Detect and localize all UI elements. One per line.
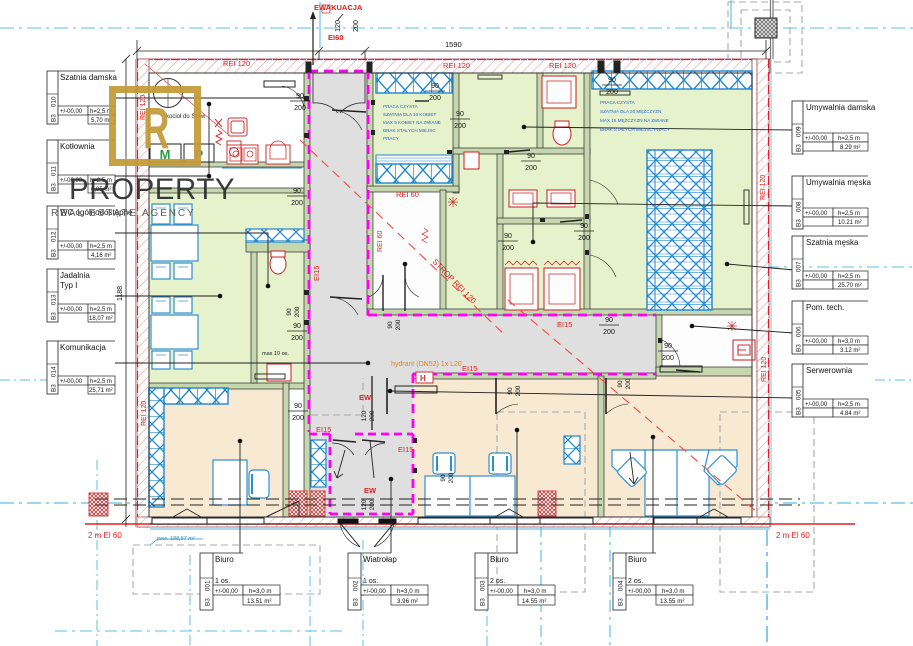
svg-text:REI 120: REI 120 bbox=[760, 175, 767, 200]
svg-text:B3 010: B3 010 bbox=[51, 96, 58, 122]
svg-text:PRACA CZYSTA: PRACA CZYSTA bbox=[383, 104, 419, 109]
svg-text:13.55 m²: 13.55 m² bbox=[660, 598, 684, 605]
svg-text:120: 120 bbox=[335, 20, 342, 32]
svg-text:h=3,0 m: h=3,0 m bbox=[838, 339, 860, 345]
svg-text:200: 200 bbox=[606, 89, 618, 96]
svg-text:h=2,5 m: h=2,5 m bbox=[90, 307, 112, 313]
svg-text:90: 90 bbox=[296, 93, 304, 100]
svg-text:EI15: EI15 bbox=[557, 320, 572, 329]
svg-text:R: R bbox=[143, 97, 169, 162]
svg-text:90: 90 bbox=[608, 77, 616, 84]
svg-text:EI15: EI15 bbox=[398, 445, 413, 454]
svg-text:h=2,5 m: h=2,5 m bbox=[90, 379, 112, 385]
svg-text:90: 90 bbox=[504, 233, 512, 240]
svg-text:B3 004: B3 004 bbox=[618, 580, 625, 606]
svg-text:PRACY: PRACY bbox=[383, 136, 399, 141]
svg-text:h=2,5 m: h=2,5 m bbox=[838, 211, 860, 217]
svg-text:hydrant (DN52) 1x L20: hydrant (DN52) 1x L20 bbox=[391, 361, 462, 368]
svg-text:5,70 m²: 5,70 m² bbox=[91, 118, 111, 124]
svg-text:B3 005: B3 005 bbox=[796, 389, 803, 415]
svg-text:+/-00,00: +/-00,00 bbox=[805, 136, 828, 142]
svg-text:BRAK STAŁYCH MIEJSC PRACY: BRAK STAŁYCH MIEJSC PRACY bbox=[600, 127, 670, 132]
svg-text:h=3,0 m: h=3,0 m bbox=[662, 588, 685, 595]
svg-text:18,07 m²: 18,07 m² bbox=[89, 316, 113, 322]
svg-text:+/-00,00: +/-00,00 bbox=[805, 211, 828, 217]
svg-text:B3 013: B3 013 bbox=[51, 294, 58, 320]
svg-text:200: 200 bbox=[292, 415, 304, 422]
svg-text:Biuro: Biuro bbox=[215, 555, 234, 564]
svg-text:+/-00,00: +/-00,00 bbox=[805, 402, 828, 408]
svg-text:120: 120 bbox=[361, 499, 368, 510]
svg-text:B3 009: B3 009 bbox=[796, 126, 803, 152]
svg-text:B3 003: B3 003 bbox=[480, 580, 487, 606]
svg-text:200: 200 bbox=[525, 165, 537, 172]
svg-text:200: 200 bbox=[291, 335, 303, 342]
svg-text:EW: EW bbox=[364, 486, 377, 495]
svg-text:EI15: EI15 bbox=[316, 425, 331, 434]
svg-text:BRAK STAŁYCH MIEJSC: BRAK STAŁYCH MIEJSC bbox=[383, 128, 436, 133]
svg-text:90: 90 bbox=[507, 387, 514, 395]
svg-text:+/-00,00: +/-00,00 bbox=[628, 588, 651, 595]
svg-text:2 m El 60: 2 m El 60 bbox=[88, 531, 122, 540]
svg-text:90: 90 bbox=[617, 380, 624, 388]
svg-text:3.96 m²: 3.96 m² bbox=[397, 598, 418, 605]
svg-text:B3 006: B3 006 bbox=[796, 326, 803, 352]
svg-text:1590: 1590 bbox=[445, 40, 462, 49]
svg-text:B3 012: B3 012 bbox=[51, 231, 58, 257]
svg-text:200: 200 bbox=[448, 472, 455, 483]
svg-text:MAX 5 KOBIET NA ZMIANE: MAX 5 KOBIET NA ZMIANE bbox=[383, 120, 441, 125]
svg-text:2 os.: 2 os. bbox=[628, 578, 643, 585]
svg-text:200: 200 bbox=[294, 306, 301, 317]
svg-text:REI 120: REI 120 bbox=[549, 61, 576, 70]
svg-text:Jadalnia: Jadalnia bbox=[60, 271, 90, 280]
svg-text:200: 200 bbox=[515, 385, 522, 396]
svg-text:3.12 m²: 3.12 m² bbox=[840, 348, 860, 354]
svg-text:14.55 m²: 14.55 m² bbox=[522, 598, 546, 605]
svg-text:200: 200 bbox=[353, 20, 360, 32]
svg-text:REI 60: REI 60 bbox=[377, 230, 384, 252]
svg-text:B3 014: B3 014 bbox=[51, 366, 58, 392]
svg-text:90: 90 bbox=[456, 111, 464, 118]
svg-text:90: 90 bbox=[293, 188, 301, 195]
svg-text:200: 200 bbox=[454, 123, 466, 130]
svg-text:90: 90 bbox=[664, 343, 672, 350]
svg-text:REI 120: REI 120 bbox=[223, 59, 250, 68]
svg-text:90: 90 bbox=[286, 308, 293, 316]
svg-text:EI15: EI15 bbox=[312, 266, 321, 281]
svg-text:+/-00,00: +/-00,00 bbox=[60, 244, 83, 250]
svg-text:90: 90 bbox=[605, 317, 613, 324]
svg-text:EW: EW bbox=[359, 393, 372, 402]
svg-text:h=3,0 m: h=3,0 m bbox=[397, 588, 420, 595]
svg-text:+/-00,00: +/-00,00 bbox=[215, 588, 238, 595]
svg-text:Kotłownia: Kotłownia bbox=[60, 142, 95, 151]
svg-text:PROPERTY: PROPERTY bbox=[69, 173, 235, 206]
svg-text:90: 90 bbox=[580, 223, 588, 230]
svg-text:2 os.: 2 os. bbox=[490, 578, 505, 585]
svg-text:EWAKUACJA: EWAKUACJA bbox=[314, 3, 363, 12]
svg-text:+/-00,00: +/-00,00 bbox=[363, 588, 386, 595]
svg-text:4,16 m²: 4,16 m² bbox=[91, 253, 111, 259]
svg-text:+/-00,00: +/-00,00 bbox=[60, 109, 83, 115]
svg-text:h=2,5 m: h=2,5 m bbox=[838, 274, 860, 280]
svg-text:PRACA CZYSTA: PRACA CZYSTA bbox=[600, 100, 636, 105]
svg-text:25,71 m²: 25,71 m² bbox=[89, 388, 113, 394]
svg-text:200: 200 bbox=[662, 355, 674, 362]
svg-text:25.70 m²: 25.70 m² bbox=[838, 283, 862, 289]
svg-text:EI60: EI60 bbox=[328, 33, 343, 42]
svg-text:+/-00,00: +/-00,00 bbox=[60, 307, 83, 313]
svg-text:Komunikacja: Komunikacja bbox=[60, 343, 106, 352]
svg-text:200: 200 bbox=[369, 410, 376, 421]
svg-text:B3 007: B3 007 bbox=[796, 261, 803, 287]
svg-text:MAX 15 MĘŻCZYZN NA ZMIANE: MAX 15 MĘŻCZYZN NA ZMIANE bbox=[600, 117, 669, 123]
svg-text:B3 002: B3 002 bbox=[353, 580, 360, 606]
svg-text:SZATNIA DLA 30 MĘŻCZYZN: SZATNIA DLA 30 MĘŻCZYZN bbox=[600, 108, 661, 114]
svg-text:Umywalnia męska: Umywalnia męska bbox=[806, 178, 871, 187]
svg-text:90: 90 bbox=[431, 83, 439, 90]
svg-text:Typ I: Typ I bbox=[60, 281, 77, 290]
svg-text:200: 200 bbox=[625, 378, 632, 389]
svg-text:120: 120 bbox=[361, 410, 368, 421]
svg-text:Biuro: Biuro bbox=[490, 555, 509, 564]
svg-text:h=2,5 m: h=2,5 m bbox=[838, 136, 860, 142]
svg-text:+/-00,00: +/-00,00 bbox=[805, 339, 828, 345]
svg-text:+/-00,00: +/-00,00 bbox=[60, 379, 83, 385]
svg-text:200: 200 bbox=[294, 105, 306, 112]
svg-text:1 os.: 1 os. bbox=[363, 578, 378, 585]
svg-text:200: 200 bbox=[395, 319, 402, 330]
svg-text:B3 011: B3 011 bbox=[51, 165, 58, 191]
svg-text:H: H bbox=[420, 374, 426, 383]
svg-text:EI15: EI15 bbox=[462, 364, 477, 373]
svg-text:h=3,0 m: h=3,0 m bbox=[524, 588, 547, 595]
svg-text:Szatnia męska: Szatnia męska bbox=[806, 238, 859, 247]
svg-text:Serwerownia: Serwerownia bbox=[806, 366, 853, 375]
svg-text:90: 90 bbox=[387, 321, 394, 329]
svg-text:Wiatrołap: Wiatrołap bbox=[363, 555, 397, 564]
svg-text:10.21 m²: 10.21 m² bbox=[838, 220, 862, 226]
svg-text:4.84 m²: 4.84 m² bbox=[840, 411, 860, 417]
svg-text:1188: 1188 bbox=[117, 286, 124, 301]
svg-text:200: 200 bbox=[369, 499, 376, 510]
svg-text:h=2,5 m: h=2,5 m bbox=[90, 244, 112, 250]
svg-text:Umywalnia damska: Umywalnia damska bbox=[806, 103, 876, 112]
svg-text:REI 120: REI 120 bbox=[761, 357, 768, 382]
svg-text:1 os.: 1 os. bbox=[215, 578, 230, 585]
svg-text:8.29 m²: 8.29 m² bbox=[840, 145, 860, 151]
svg-text:h=3,0 m: h=3,0 m bbox=[249, 588, 272, 595]
svg-text:h=2,5 m: h=2,5 m bbox=[838, 402, 860, 408]
svg-text:200: 200 bbox=[603, 329, 615, 336]
svg-text:B3 001: B3 001 bbox=[205, 580, 212, 606]
svg-text:200: 200 bbox=[578, 235, 590, 242]
svg-text:2 m El 60: 2 m El 60 bbox=[776, 531, 810, 540]
svg-text:90: 90 bbox=[440, 474, 447, 482]
svg-text:90: 90 bbox=[293, 323, 301, 330]
svg-text:+/-00,00: +/-00,00 bbox=[490, 588, 513, 595]
svg-text:REI 120: REI 120 bbox=[443, 61, 470, 70]
svg-text:B3 008: B3 008 bbox=[796, 201, 803, 227]
svg-text:REI 120: REI 120 bbox=[141, 401, 148, 426]
svg-text:Pom. tech.: Pom. tech. bbox=[806, 303, 844, 312]
svg-text:200: 200 bbox=[502, 245, 514, 252]
svg-text:REI 60: REI 60 bbox=[396, 190, 419, 199]
svg-text:REAL ESTATE AGENCY: REAL ESTATE AGENCY bbox=[51, 208, 196, 219]
svg-text:90: 90 bbox=[527, 153, 535, 160]
svg-text:+/-00,00: +/-00,00 bbox=[805, 274, 828, 280]
svg-text:Biuro: Biuro bbox=[628, 555, 647, 564]
svg-text:200: 200 bbox=[429, 95, 441, 102]
svg-text:Szatnia damska: Szatnia damska bbox=[60, 73, 117, 82]
svg-text:13.51 m²: 13.51 m² bbox=[247, 598, 271, 605]
svg-text:200: 200 bbox=[291, 200, 303, 207]
svg-text:max 10 os.: max 10 os. bbox=[262, 351, 289, 357]
svg-text:h=2,5 m: h=2,5 m bbox=[90, 109, 112, 115]
svg-text:SZATNIA DLA 10 KOBIET: SZATNIA DLA 10 KOBIET bbox=[383, 112, 436, 117]
svg-text:90: 90 bbox=[294, 403, 302, 410]
